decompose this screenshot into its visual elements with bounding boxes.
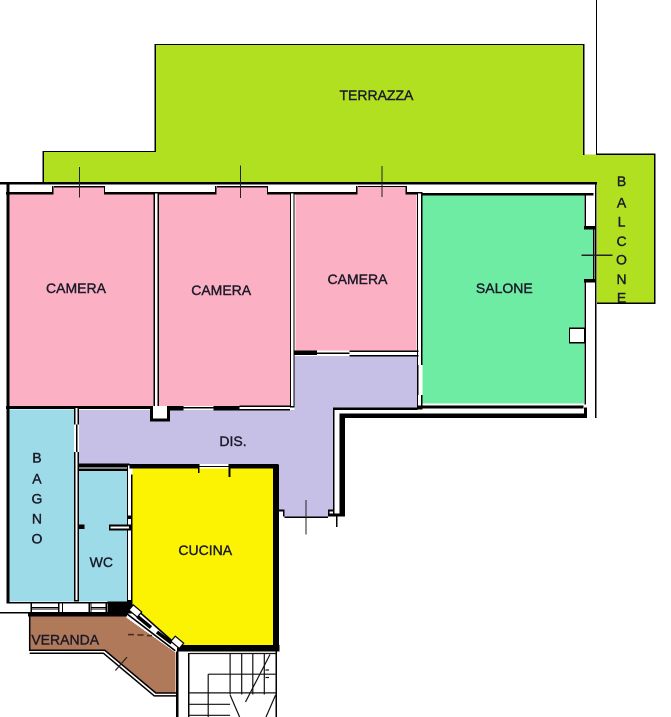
svg-text:G: G bbox=[31, 490, 42, 506]
svg-text:N: N bbox=[616, 271, 626, 287]
svg-text:B: B bbox=[32, 450, 41, 466]
svg-text:A: A bbox=[617, 194, 627, 210]
svg-text:A: A bbox=[32, 471, 42, 487]
svg-text:CAMERA: CAMERA bbox=[46, 280, 107, 296]
svg-text:WC: WC bbox=[90, 554, 113, 570]
svg-text:CUCINA: CUCINA bbox=[178, 542, 232, 558]
svg-text:CAMERA: CAMERA bbox=[191, 282, 252, 298]
svg-text:SALONE: SALONE bbox=[476, 280, 533, 296]
svg-text:E: E bbox=[617, 289, 626, 305]
svg-text:DIS.: DIS. bbox=[219, 433, 246, 449]
svg-text:CAMERA: CAMERA bbox=[328, 271, 389, 287]
svg-text:B: B bbox=[617, 173, 626, 189]
svg-text:O: O bbox=[31, 531, 42, 547]
svg-text:C: C bbox=[616, 233, 626, 249]
svg-text:L: L bbox=[618, 214, 626, 230]
svg-text:N: N bbox=[32, 510, 42, 526]
svg-text:TERRAZZA: TERRAZZA bbox=[339, 87, 414, 103]
svg-text:O: O bbox=[616, 252, 627, 268]
svg-text:VERANDA: VERANDA bbox=[31, 632, 99, 648]
